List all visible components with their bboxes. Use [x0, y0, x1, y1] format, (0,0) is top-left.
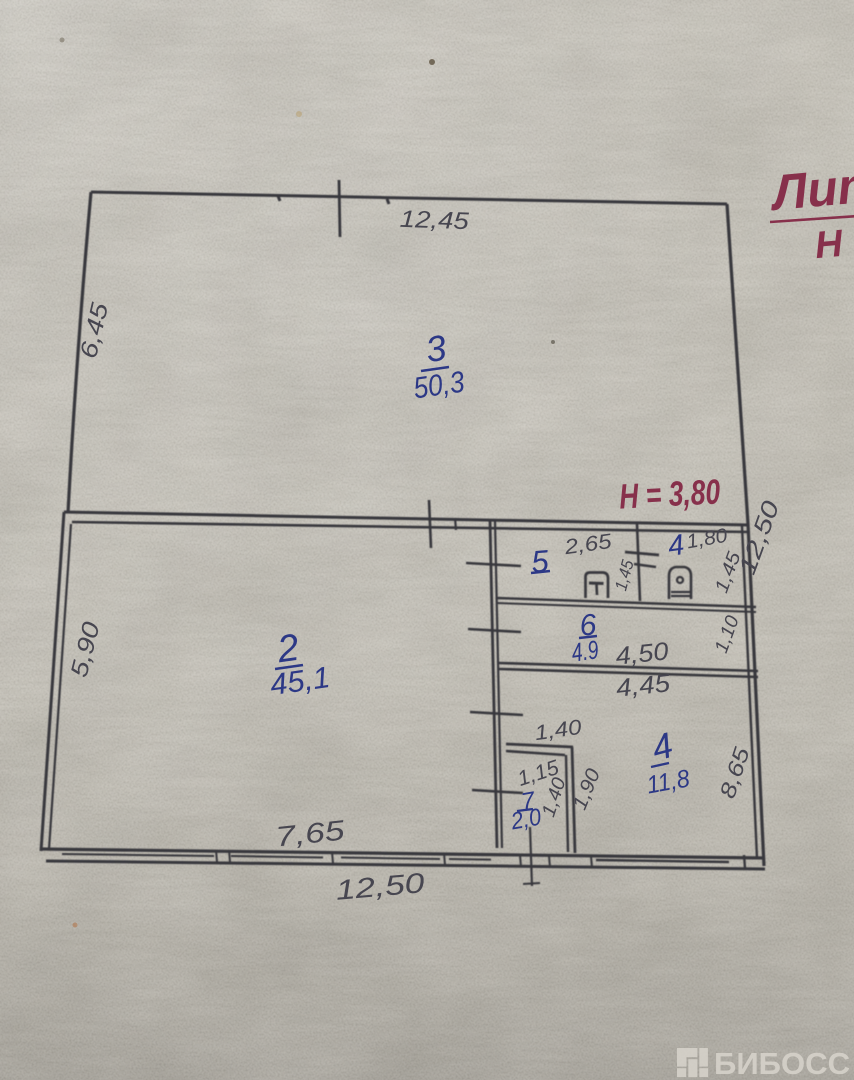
svg-text:4,45: 4,45: [615, 669, 672, 703]
svg-text:Н =: Н =: [813, 220, 854, 267]
svg-text:Н = 3,80: Н = 3,80: [618, 472, 721, 516]
svg-text:4.9: 4.9: [570, 634, 601, 667]
svg-text:БИБОСС: БИБОСС: [714, 1046, 850, 1080]
svg-text:4,50: 4,50: [614, 637, 670, 670]
svg-text:12,45: 12,45: [399, 206, 470, 235]
svg-text:2,0: 2,0: [508, 803, 544, 835]
svg-text:50,3: 50,3: [411, 366, 466, 406]
